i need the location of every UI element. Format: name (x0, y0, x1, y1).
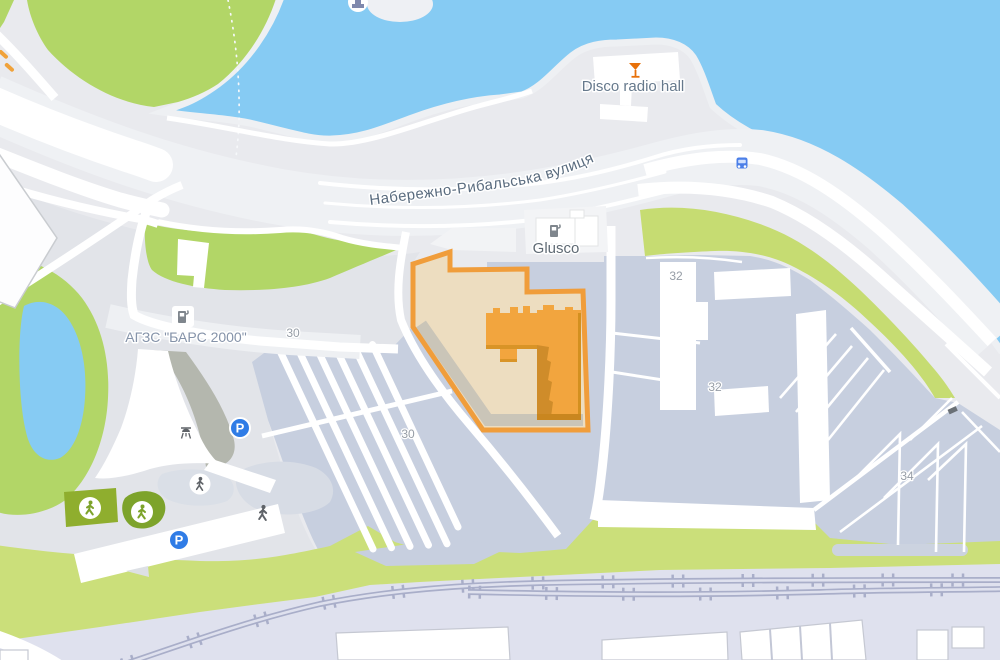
svg-text:АГЗС "БАРС 2000": АГЗС "БАРС 2000" (125, 329, 246, 345)
svg-text:P: P (175, 533, 184, 548)
svg-text:32: 32 (708, 380, 722, 394)
svg-text:30: 30 (401, 427, 415, 441)
svg-text:32: 32 (669, 269, 683, 283)
svg-text:Disco radio hall: Disco radio hall (582, 78, 685, 95)
svg-text:Glusco: Glusco (533, 240, 580, 257)
svg-text:34: 34 (900, 469, 914, 483)
svg-text:30: 30 (286, 326, 300, 340)
svg-text:P: P (236, 421, 245, 436)
